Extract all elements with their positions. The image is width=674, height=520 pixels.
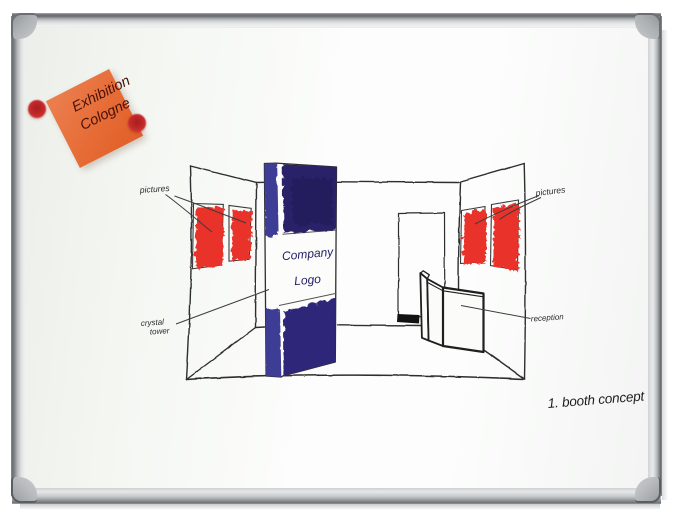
svg-text:1. booth concept: 1. booth concept: [547, 388, 646, 411]
svg-text:pictures: pictures: [138, 183, 170, 195]
svg-text:reception: reception: [531, 312, 565, 323]
svg-text:pictures: pictures: [534, 184, 566, 198]
svg-text:tower: tower: [150, 326, 170, 336]
svg-text:Logo: Logo: [294, 272, 322, 288]
